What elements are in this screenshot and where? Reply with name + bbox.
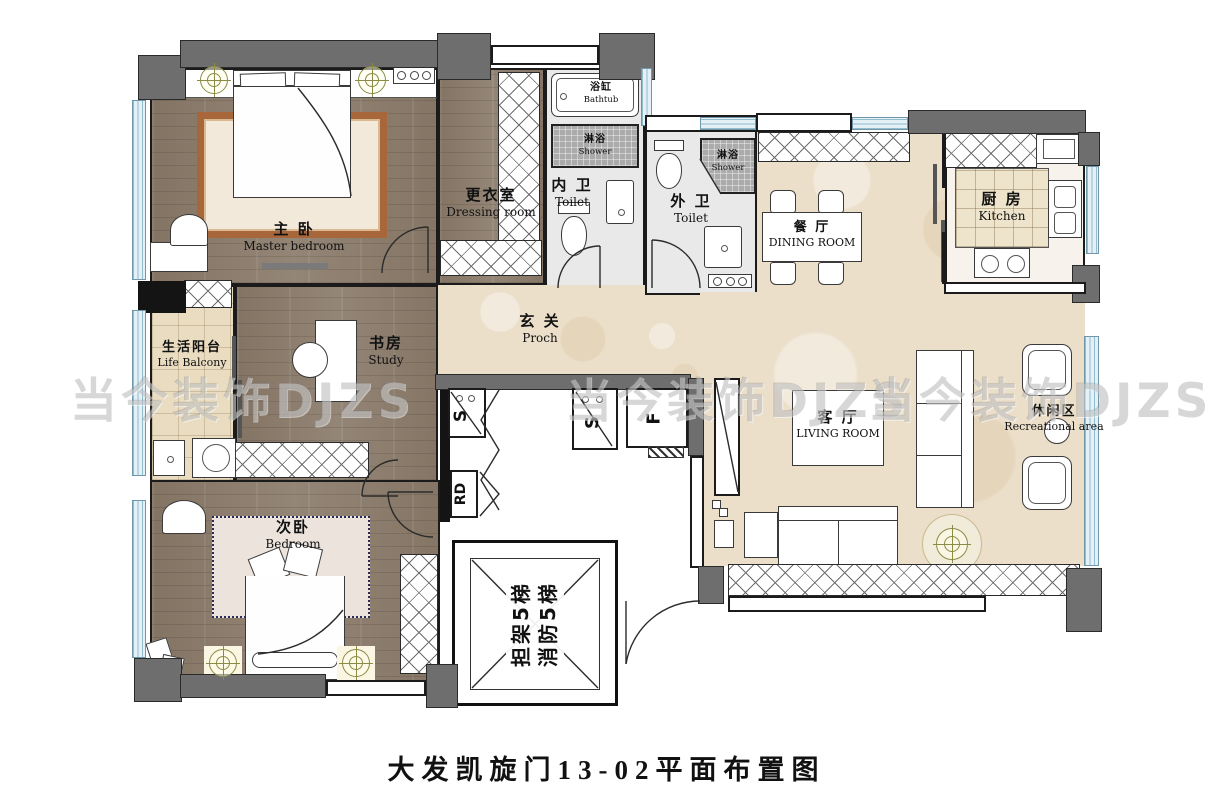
kitchen-wall <box>942 232 946 284</box>
kitchen-label: 厨 房 Kitchen <box>960 190 1044 224</box>
watermark: 当今装饰DJZS <box>70 362 414 431</box>
dining-chair <box>770 190 796 213</box>
ceiling-light <box>358 66 386 94</box>
wall-pier <box>1078 132 1100 166</box>
toilet-bowl <box>656 153 682 189</box>
dining-room-label: 餐 厅 DINING ROOM <box>763 220 861 250</box>
tv-console-bar <box>262 263 328 269</box>
shower-label: 淋浴 Shower <box>702 150 754 173</box>
wall-bottom <box>180 674 326 698</box>
wall-bottom-band <box>326 680 426 696</box>
window <box>1086 166 1099 254</box>
dining-chair <box>818 190 844 213</box>
sink <box>606 180 634 224</box>
ceiling-light <box>209 649 237 677</box>
entrance-label: 玄 关 Proch <box>465 312 615 346</box>
second-bedroom-label: 次卧 Bedroom <box>238 518 348 552</box>
wall-pier <box>437 33 491 80</box>
bottom-wall-band <box>728 596 986 612</box>
wall-top-right <box>908 110 1086 134</box>
sofa <box>778 506 898 568</box>
watermark: 当今装饰DJZS <box>565 362 909 431</box>
switch-box <box>719 508 728 517</box>
watermark: 当今装饰DJZS <box>868 362 1212 431</box>
inner-toilet-label: 内 卫 Toilet <box>536 176 608 210</box>
wall-lintel <box>491 45 599 65</box>
dining-cabinet <box>758 132 910 162</box>
floorplan-canvas: S RD S F 担架5梯消防5梯 <box>0 0 1213 800</box>
wall-top <box>180 40 440 68</box>
window <box>132 500 146 658</box>
switch-panel <box>708 274 752 288</box>
sliding-door-rail <box>933 164 937 224</box>
elevator-line1: 担架5梯 <box>508 581 535 667</box>
toilet <box>654 140 684 151</box>
balcony-cabinet <box>184 280 232 308</box>
dresser-table <box>150 242 208 272</box>
bathtub-label: 浴缸 Bathtub <box>566 82 636 105</box>
plan-title: 大发凯旋门13-02平面布置图 <box>0 748 1213 787</box>
elevator-line2: 消防5梯 <box>535 581 562 667</box>
wardrobe <box>440 240 542 276</box>
washing-machine <box>192 438 236 478</box>
wardrobe <box>235 442 369 478</box>
window <box>852 117 908 130</box>
fridge <box>1036 134 1082 164</box>
shaft-rd-label: RD <box>453 483 469 505</box>
kitchen-wall <box>942 132 946 188</box>
wall-pier <box>426 664 458 708</box>
wall-corner <box>1066 568 1102 632</box>
master-bed <box>233 86 351 198</box>
kitchen-sink <box>1048 180 1082 238</box>
hatch-strip <box>648 446 684 458</box>
tv-unit <box>714 520 734 548</box>
wall-block <box>138 281 186 313</box>
toilet-bowl <box>561 216 587 256</box>
wall-corner <box>138 55 186 100</box>
corridor-wall <box>690 456 704 568</box>
side-table <box>744 512 778 558</box>
kitchen-bottom-wall <box>944 282 1086 294</box>
master-bedroom-label: 主 卧 Master bedroom <box>232 220 356 254</box>
shaft-s1-label: S <box>451 410 471 422</box>
bedroom-chair <box>162 500 206 534</box>
wardrobe <box>400 554 438 674</box>
entry-wall-block <box>698 566 724 604</box>
window <box>700 117 756 130</box>
dresser-chair <box>170 214 208 246</box>
ceiling-light <box>200 66 228 94</box>
wall-lintel <box>756 113 852 132</box>
outer-toilet-label: 外 卫 Toilet <box>652 192 730 226</box>
ceiling-light <box>342 649 370 677</box>
stove <box>974 248 1030 278</box>
wall-corner <box>134 658 182 702</box>
sink <box>704 226 742 268</box>
window <box>132 100 146 280</box>
armchair <box>1022 456 1072 510</box>
dressing-room-label: 更衣室 Dressing room <box>433 186 549 220</box>
elevator-label: 担架5梯消防5梯 <box>470 558 600 690</box>
ceiling-light <box>936 528 968 560</box>
kitchen-cabinet <box>945 132 1037 168</box>
dining-chair <box>770 262 796 285</box>
switch-panel <box>393 66 435 84</box>
bed-footboard <box>252 652 338 668</box>
shower-label: 淋浴 Shower <box>560 134 630 157</box>
dining-chair <box>818 262 844 285</box>
tv-cabinet-long <box>728 564 1080 596</box>
laundry-sink <box>153 440 185 476</box>
